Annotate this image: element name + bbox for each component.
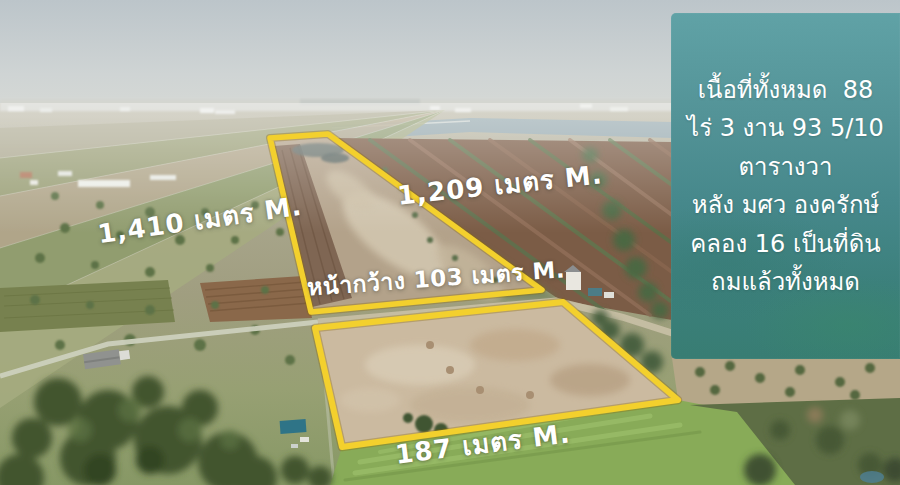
info-panel-line-location: หลัง มศว องครักษ์ — [681, 186, 890, 225]
info-panel-line-khlong: คลอง 16 เป็นที่ดิน — [681, 225, 890, 264]
info-panel-line-rai-ngan: ไร่ 3 งาน 93 5/10 — [681, 109, 890, 148]
info-panel-line-filled-land: ถมแล้วทั้งหมด — [681, 263, 890, 302]
screenshot-root: 1,410 เมตร M. 1,209 เมตร M. หน้ากว้าง 10… — [0, 0, 900, 485]
info-panel-line-total-area: เนื้อที่ทั้งหมด 88 — [681, 71, 890, 110]
info-panel: เนื้อที่ทั้งหมด 88 ไร่ 3 งาน 93 5/10 ตาร… — [671, 13, 900, 359]
info-panel-line-square-wa: ตารางวา — [681, 148, 890, 187]
